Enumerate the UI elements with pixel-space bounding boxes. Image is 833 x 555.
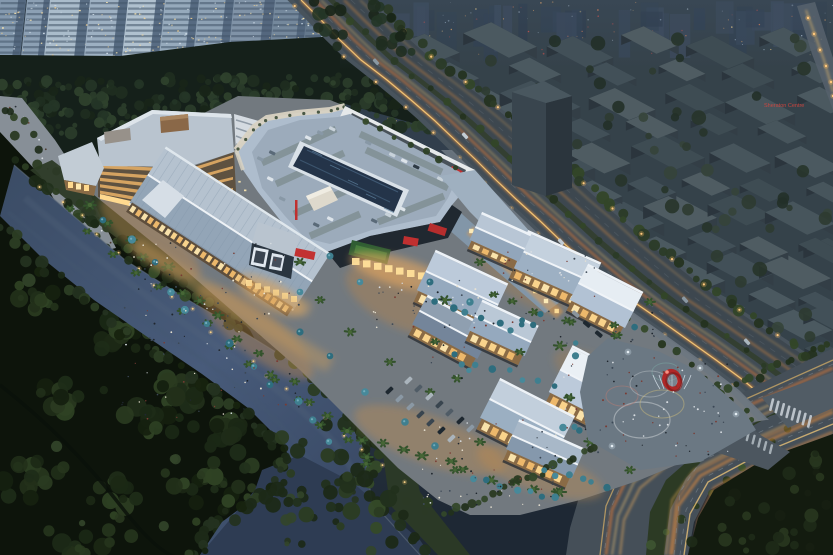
svg-text:Sheraton Centre: Sheraton Centre <box>764 103 804 109</box>
